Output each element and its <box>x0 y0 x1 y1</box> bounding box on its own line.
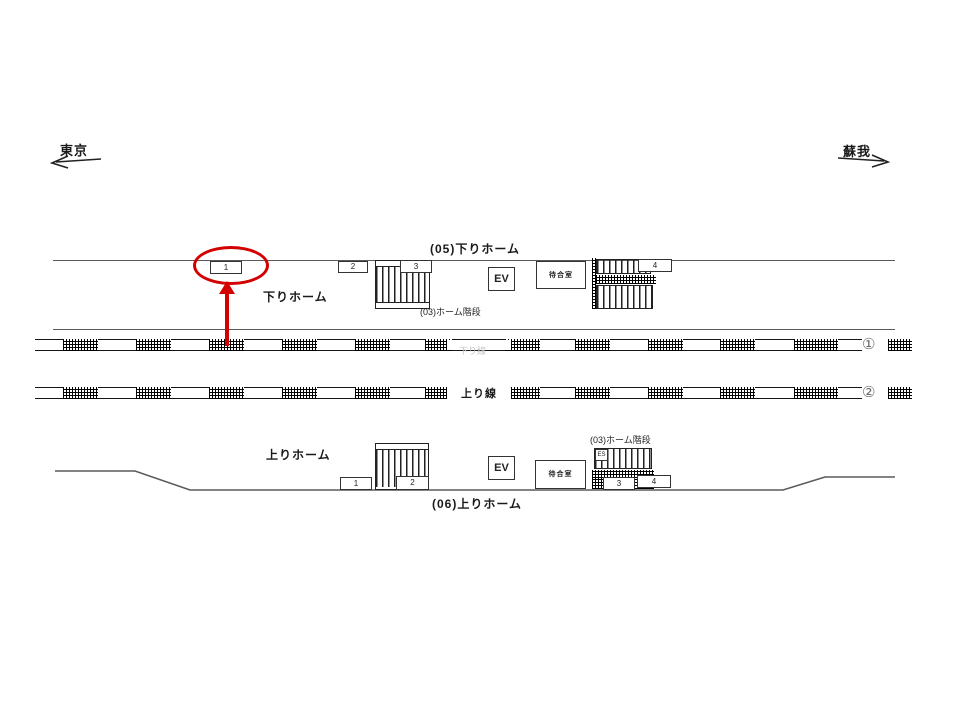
track1-down-line-label: 下り線 <box>459 344 486 357</box>
track-hatch-segment <box>720 387 755 399</box>
track1-number-badge: ① <box>862 335 875 353</box>
bottom-stairs-label: (03)ホーム階段 <box>590 433 651 446</box>
track2-number-badge: ② <box>862 383 875 401</box>
ad-position-top-2[interactable]: 2 <box>338 261 368 273</box>
track-hatch-segment <box>648 387 683 399</box>
track-hatch-segment <box>209 387 244 399</box>
ad-position-top-4[interactable]: 4 <box>638 259 672 272</box>
direction-right-label: 蘇我 <box>843 141 871 160</box>
track-hatch-segment <box>794 387 838 399</box>
complex-mid-hatch <box>596 275 656 284</box>
track-hatch-segment <box>888 339 912 351</box>
track-hatch-segment <box>136 387 171 399</box>
track-hatch-segment <box>63 339 98 351</box>
bottom-platform-edge <box>55 471 895 490</box>
station-platform-diagram: 東京 蘇我 (05)下りホーム 下りホーム 1 2 3 (03)ホーム階段 EV… <box>0 0 960 720</box>
track-hatch-segment <box>575 387 610 399</box>
top-waiting-room-box: 待合室 <box>536 261 586 289</box>
track-hatch-segment <box>794 339 838 351</box>
track-hatch-segment <box>720 339 755 351</box>
bottom-platform-name: 上りホーム <box>266 446 331 463</box>
ad-position-bottom-3[interactable]: 3 <box>603 477 635 490</box>
diagram-lines-layer <box>0 0 960 720</box>
stairs-top-landing <box>376 444 428 450</box>
track-hatch-segment <box>63 387 98 399</box>
bottom-platform-title: (06)上りホーム <box>432 495 522 512</box>
top-platform-lower-edge <box>53 329 895 330</box>
track-hatch-segment <box>282 387 317 399</box>
track-hatch-segment <box>355 387 390 399</box>
ad-position-top-3[interactable]: 3 <box>400 260 432 273</box>
ad-position-bottom-1[interactable]: 1 <box>340 477 372 490</box>
track2-label-patch: 上り線 <box>447 385 511 401</box>
top-platform-title: (05)下りホーム <box>430 240 520 257</box>
track-hatch-segment <box>575 339 610 351</box>
top-platform-upper-edge <box>53 260 895 261</box>
ad-position-bottom-4[interactable]: 4 <box>637 475 671 488</box>
highlight-ellipse <box>193 246 269 285</box>
bottom-escalator-box: ES <box>595 449 608 461</box>
top-stairs-label: (03)ホーム階段 <box>420 305 481 318</box>
direction-left-label: 東京 <box>60 140 88 159</box>
bottom-elevator-box: EV <box>488 456 515 480</box>
track2-up-line-label: 上り線 <box>461 385 497 401</box>
complex-lower-steps <box>596 285 653 309</box>
top-elevator-box: EV <box>488 267 515 291</box>
track-hatch-segment <box>136 339 171 351</box>
highlight-arrow-shaft <box>225 292 229 346</box>
track-hatch-segment <box>355 339 390 351</box>
track-hatch-segment <box>888 387 912 399</box>
track-hatch-segment <box>648 339 683 351</box>
ad-position-bottom-2[interactable]: 2 <box>396 476 429 490</box>
bottom-waiting-room-box: 待合室 <box>535 460 586 489</box>
track-hatch-segment <box>282 339 317 351</box>
top-platform-name: 下りホーム <box>263 288 328 305</box>
